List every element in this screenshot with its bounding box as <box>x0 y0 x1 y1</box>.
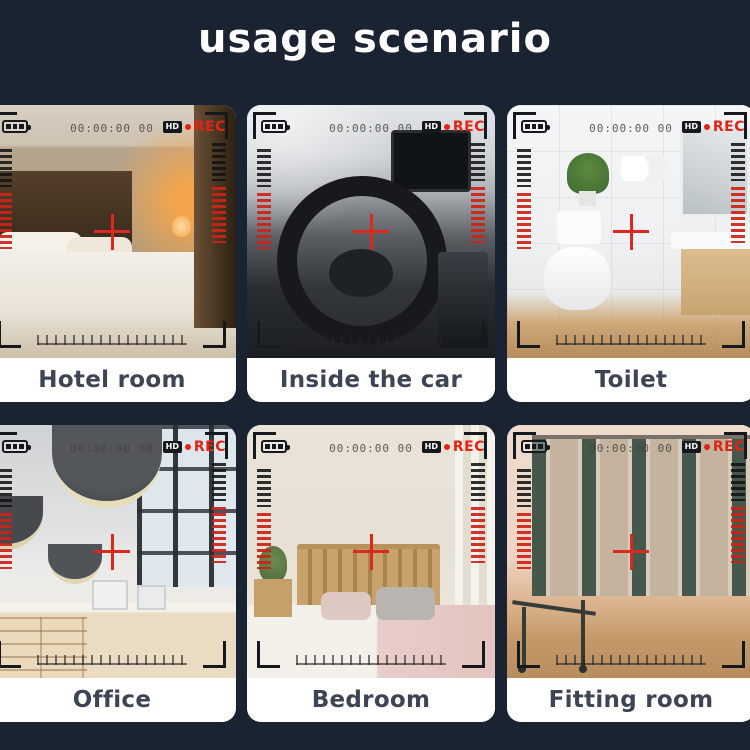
viewfinder-overlay: 00:00:00 00 HD REC <box>247 105 495 358</box>
car-interior-photo: 00:00:00 00 HD REC <box>247 105 495 358</box>
hd-badge: HD <box>422 121 441 133</box>
scenario-card-fitting-room: 00:00:00 00 HD REC Fitting room <box>507 425 750 722</box>
focus-ruler-icon <box>556 335 706 345</box>
focus-ruler-icon <box>556 655 706 665</box>
hd-badge: HD <box>682 441 701 453</box>
rec-indicator: REC <box>185 119 226 135</box>
corner-bracket-bottom-right-icon <box>722 641 745 668</box>
hd-badge: HD <box>682 121 701 133</box>
corner-bracket-bottom-left-icon <box>0 321 21 348</box>
crosshair-icon <box>94 214 130 250</box>
viewfinder-overlay: 00:00:00 00 HD REC <box>247 425 495 678</box>
scenario-card-bedroom: 00:00:00 00 HD REC Bedroom <box>247 425 495 722</box>
crosshair-icon <box>353 534 389 570</box>
card-label: Fitting room <box>507 678 750 722</box>
battery-icon <box>521 440 547 453</box>
level-meter-left-icon <box>0 469 12 569</box>
card-label: Hotel room <box>0 358 236 402</box>
level-meter-left-icon <box>257 149 271 249</box>
viewfinder-overlay: 00:00:00 00 HD REC <box>0 425 236 678</box>
corner-bracket-bottom-right-icon <box>462 641 485 668</box>
timecode: 00:00:00 00 <box>329 442 413 455</box>
battery-icon <box>261 120 287 133</box>
hotel-room-photo: 00:00:00 00 HD REC <box>0 105 236 358</box>
corner-bracket-bottom-right-icon <box>203 321 226 348</box>
card-label: Bedroom <box>247 678 495 722</box>
timecode: 00:00:00 00 <box>589 442 673 455</box>
timecode: 00:00:00 00 <box>70 442 154 455</box>
focus-ruler-icon <box>296 655 446 665</box>
crosshair-icon <box>613 214 649 250</box>
level-meter-right-icon <box>731 143 745 243</box>
level-meter-right-icon <box>471 143 485 243</box>
scenario-card-toilet: 00:00:00 00 HD REC Toilet <box>507 105 750 402</box>
rec-indicator: REC <box>185 439 226 455</box>
viewfinder-overlay: 00:00:00 00 HD REC <box>0 105 236 358</box>
viewfinder-overlay: 00:00:00 00 HD REC <box>507 105 750 358</box>
level-meter-right-icon <box>731 463 745 563</box>
usage-scenario-poster: usage scenario 00:00:00 00 HD REC <box>0 0 750 750</box>
corner-bracket-bottom-right-icon <box>722 321 745 348</box>
scenario-card-hotel-room: 00:00:00 00 HD REC Hotel room <box>0 105 236 402</box>
card-label: Office <box>0 678 236 722</box>
level-meter-left-icon <box>0 149 12 249</box>
scenario-card-office: 00:00:00 00 HD REC Office <box>0 425 236 722</box>
hd-badge: HD <box>163 441 182 453</box>
card-label: Inside the car <box>247 358 495 402</box>
rec-indicator: REC <box>704 439 745 455</box>
hd-badge: HD <box>163 121 182 133</box>
rec-indicator: REC <box>704 119 745 135</box>
battery-icon <box>521 120 547 133</box>
crosshair-icon <box>353 214 389 250</box>
level-meter-right-icon <box>471 463 485 563</box>
level-meter-left-icon <box>257 469 271 569</box>
focus-ruler-icon <box>296 335 446 345</box>
battery-icon <box>2 120 28 133</box>
focus-ruler-icon <box>37 655 187 665</box>
bedroom-photo: 00:00:00 00 HD REC <box>247 425 495 678</box>
focus-ruler-icon <box>37 335 187 345</box>
corner-bracket-bottom-left-icon <box>517 321 540 348</box>
battery-icon <box>2 440 28 453</box>
crosshair-icon <box>94 534 130 570</box>
office-photo: 00:00:00 00 HD REC <box>0 425 236 678</box>
level-meter-left-icon <box>517 469 531 569</box>
fitting-room-photo: 00:00:00 00 HD REC <box>507 425 750 678</box>
rec-indicator: REC <box>444 439 485 455</box>
corner-bracket-bottom-right-icon <box>203 641 226 668</box>
timecode: 00:00:00 00 <box>70 122 154 135</box>
corner-bracket-bottom-left-icon <box>0 641 21 668</box>
corner-bracket-bottom-left-icon <box>517 641 540 668</box>
card-label: Toilet <box>507 358 750 402</box>
corner-bracket-bottom-left-icon <box>257 321 280 348</box>
scenario-card-inside-the-car: 00:00:00 00 HD REC Inside the car <box>247 105 495 402</box>
timecode: 00:00:00 00 <box>589 122 673 135</box>
rec-indicator: REC <box>444 119 485 135</box>
page-title: usage scenario <box>0 16 750 62</box>
corner-bracket-bottom-right-icon <box>462 321 485 348</box>
corner-bracket-bottom-left-icon <box>257 641 280 668</box>
level-meter-right-icon <box>212 463 226 563</box>
crosshair-icon <box>613 534 649 570</box>
level-meter-right-icon <box>212 143 226 243</box>
hd-badge: HD <box>422 441 441 453</box>
level-meter-left-icon <box>517 149 531 249</box>
toilet-photo: 00:00:00 00 HD REC <box>507 105 750 358</box>
timecode: 00:00:00 00 <box>329 122 413 135</box>
viewfinder-overlay: 00:00:00 00 HD REC <box>507 425 750 678</box>
battery-icon <box>261 440 287 453</box>
